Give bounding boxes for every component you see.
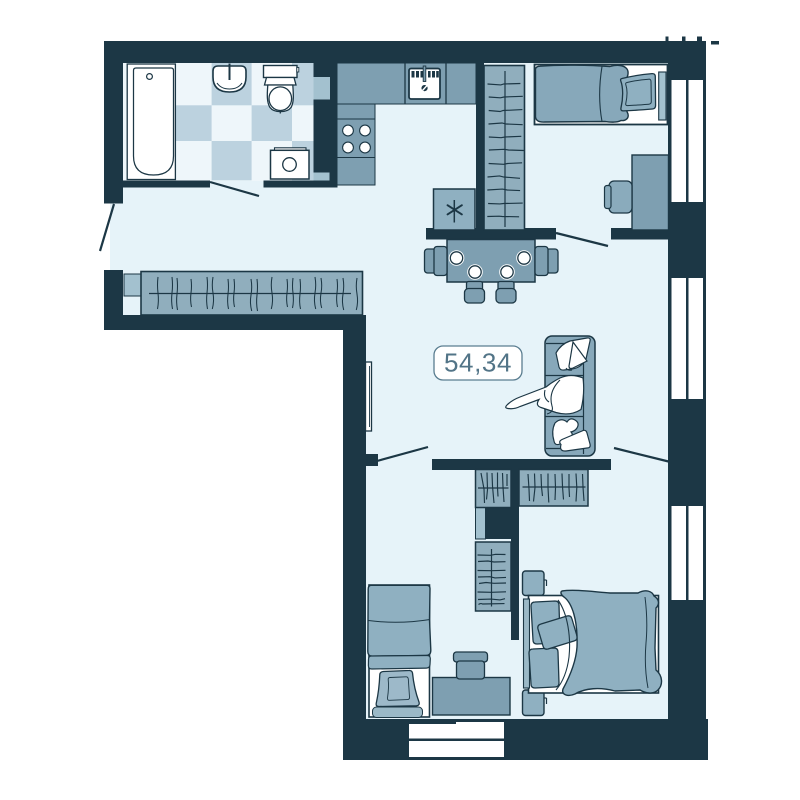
svg-text:54,34: 54,34 bbox=[444, 348, 512, 378]
